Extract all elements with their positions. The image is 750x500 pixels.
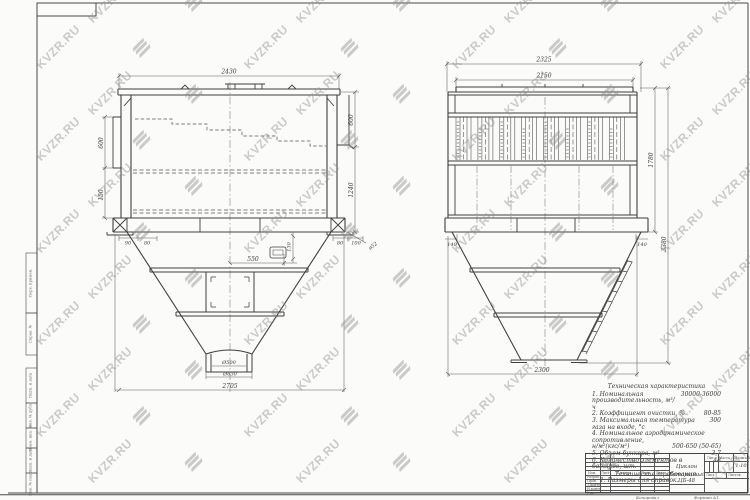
tb-sheets-label: Листов: [728, 473, 740, 477]
tb-product-name-2: Батарейный ЦБ-48: [669, 472, 704, 484]
drawing-sheet: Перв. примен. Справ. № Подп. и дата Инв.…: [0, 0, 750, 500]
tb-col-lit: Лит.: [707, 456, 715, 460]
dim-width-top: 2325: [535, 57, 551, 64]
tb-line: [586, 466, 669, 467]
dim-width-inner: 2150: [535, 73, 551, 80]
tb-product-name-1: Циклон: [669, 464, 704, 470]
tb-header-podp: Подп.: [641, 471, 651, 475]
dim-foot-right-2: 100: [351, 241, 361, 247]
dim-sensor-height: 130: [287, 241, 293, 251]
dim-corner-left: 140: [447, 242, 457, 248]
dim-outlet-flange-dia: Ø630: [222, 371, 237, 378]
side-view: [445, 84, 648, 372]
dim-left-upper: 600: [98, 137, 105, 149]
format-label: Формат А1: [694, 495, 719, 500]
tech-item-value: 300: [707, 418, 721, 431]
dim-right-upper: 600: [348, 114, 355, 126]
tb-line: [709, 461, 710, 472]
tech-item: 1. Номинальная производительность, м³/ч …: [592, 392, 721, 412]
dim-height-body: 1780: [648, 152, 655, 167]
dim-foot-left-1: 90: [125, 241, 132, 247]
dim-right-lower: 1240: [348, 182, 355, 197]
dim-width-bottom: 2300: [533, 367, 549, 374]
dim-width-top: 2430: [220, 69, 236, 76]
funnel-ladder: [582, 260, 633, 354]
dim-foot-left-2: 80: [144, 241, 151, 247]
tb-line: [704, 478, 749, 479]
copied-label: Копировал: [636, 495, 659, 500]
tech-title: Техническая характеристика: [592, 384, 721, 391]
tb-col-scale: Масштаб: [734, 456, 750, 460]
tb-line: [586, 462, 669, 463]
stamp-label: Взам. инв. №: [28, 425, 33, 451]
stamp-label: Подп. и дата: [28, 372, 33, 398]
stamp-label: Инв. № подл.: [28, 470, 33, 496]
tech-item-text: 1. Номинальная производительность, м³/ч: [592, 392, 678, 412]
dim-corner-right: 140: [637, 242, 647, 248]
tb-scale-value: 1:10: [733, 463, 749, 469]
tb-header-izm: Изм.: [588, 471, 596, 475]
tech-item-value: 30000-36000: [678, 392, 721, 412]
tb-header-docnum: № докум.: [616, 471, 632, 475]
tb-line: [713, 461, 714, 472]
dim-outlet-dia: Ø500: [221, 359, 236, 366]
stamp-label: Инв. № дубл.: [28, 403, 33, 429]
title-block: Изм. Лист № докум. Подп. Дата Разраб. Пр…: [585, 453, 748, 493]
dim-foot-right-1: 80: [337, 241, 344, 247]
tb-header-data: Дата: [656, 471, 664, 475]
dim-left-lower: 150: [98, 189, 105, 201]
dim-width-bottom: 2705: [221, 383, 237, 390]
cyclone-battery-elements: [456, 117, 624, 160]
stamp-label: Перв. примен.: [28, 269, 33, 298]
tb-sheet-label: Лист: [706, 473, 715, 477]
margin-stamp-labels: Перв. примен. Справ. № Подп. и дата Инв.…: [28, 269, 33, 496]
front-view: [107, 82, 354, 392]
top-reference-box: [37, 3, 96, 16]
tb-col-mass: Масса: [719, 456, 730, 460]
tb-line: [704, 461, 749, 462]
dim-height-total: 3380: [661, 236, 668, 251]
dim-anchor-dia: ø52: [367, 241, 379, 252]
tb-line: [586, 458, 669, 459]
tb-staff-utv: Утв.: [587, 491, 594, 495]
stamp-label: Справ. №: [28, 324, 33, 343]
tb-line: [669, 484, 704, 485]
dim-hatch-offset: 550: [247, 256, 259, 263]
tb-header-list: Лист: [601, 471, 610, 475]
stamp-label: Подп. и дата: [28, 447, 33, 473]
